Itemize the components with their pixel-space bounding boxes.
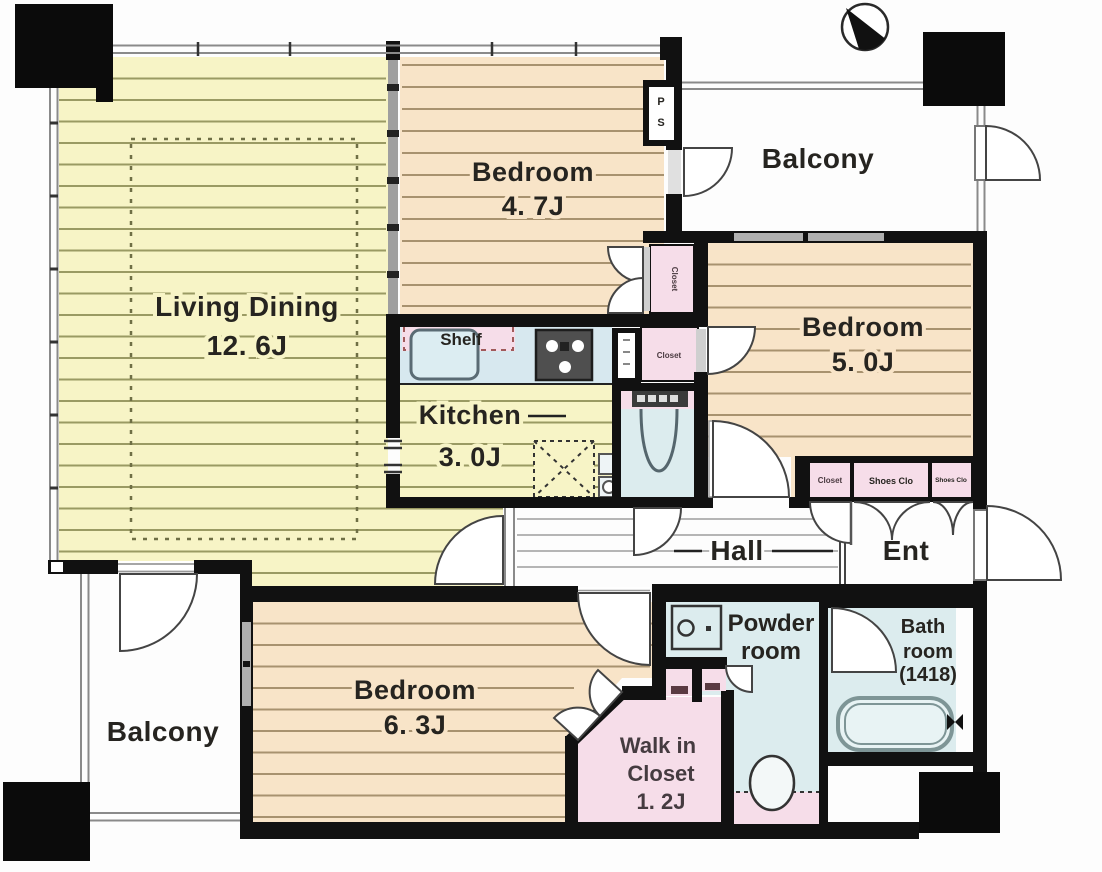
svg-text:S: S (657, 117, 664, 129)
svg-text:Shoes Clo: Shoes Clo (935, 477, 967, 484)
svg-text:Closet: Closet (670, 267, 679, 292)
svg-text:Bath: Bath (901, 616, 945, 638)
svg-text:5. 0J: 5. 0J (832, 347, 895, 377)
svg-text:P: P (657, 96, 664, 108)
svg-text:1. 2J: 1. 2J (637, 789, 686, 814)
svg-text:Walk in: Walk in (620, 733, 696, 758)
svg-text:Hall: Hall (710, 535, 763, 566)
svg-text:4. 7J: 4. 7J (502, 191, 565, 221)
svg-text:Closet: Closet (657, 351, 682, 360)
svg-text:Bedroom: Bedroom (802, 312, 924, 342)
svg-text:room: room (903, 641, 953, 663)
svg-text:Ent: Ent (883, 535, 930, 566)
svg-text:Living Dining: Living Dining (155, 291, 339, 322)
svg-text:Balcony: Balcony (107, 716, 219, 747)
svg-text:Bedroom: Bedroom (354, 675, 476, 705)
svg-text:Balcony: Balcony (762, 143, 874, 174)
svg-text:6. 3J: 6. 3J (384, 710, 447, 740)
svg-text:Shoes Clo: Shoes Clo (869, 476, 914, 486)
svg-text:(1418): (1418) (899, 664, 957, 686)
svg-text:12. 6J: 12. 6J (207, 330, 288, 361)
svg-text:room: room (741, 638, 801, 665)
svg-text:3. 0J: 3. 0J (439, 442, 502, 472)
svg-text:Bedroom: Bedroom (472, 157, 594, 187)
svg-text:Shelf: Shelf (440, 330, 482, 349)
svg-text:Kitchen: Kitchen (419, 400, 522, 430)
svg-text:Closet: Closet (818, 476, 843, 485)
svg-text:Powder: Powder (728, 610, 815, 637)
svg-text:Closet: Closet (627, 761, 695, 786)
